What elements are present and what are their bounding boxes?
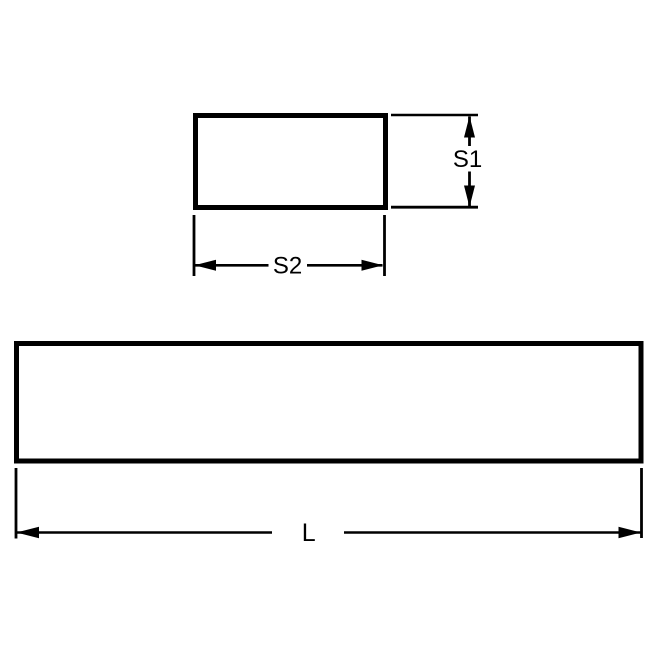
svg-text:S2: S2 — [273, 253, 302, 280]
svg-text:S1: S1 — [453, 146, 482, 173]
svg-text:L: L — [302, 519, 316, 547]
